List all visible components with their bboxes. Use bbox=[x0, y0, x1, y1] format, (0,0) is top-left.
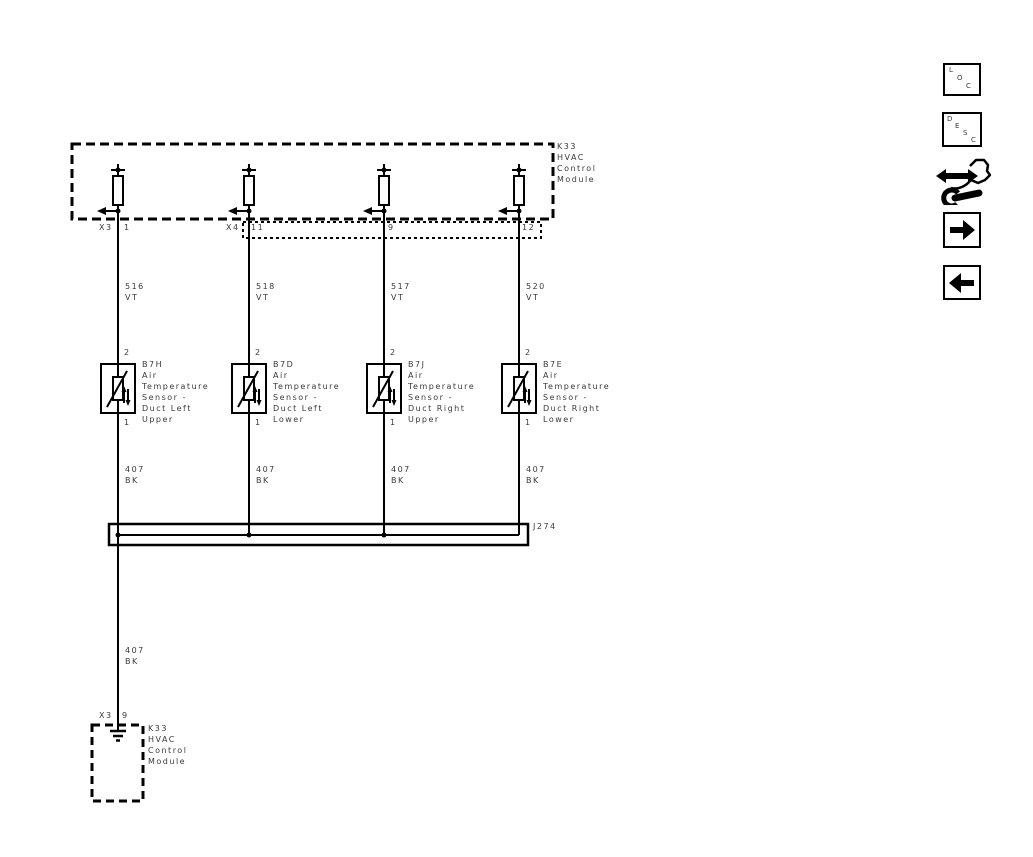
connector-label-x3: X3 bbox=[99, 222, 113, 233]
module-label-line: K33 bbox=[557, 141, 596, 152]
wiring-diagram-page: K33 HVAC Control Module X3 1 X4 11 9 12 … bbox=[0, 0, 1033, 857]
wire-color: BK bbox=[526, 475, 546, 486]
top-module-label: K33 HVAC Control Module bbox=[557, 141, 596, 185]
wire-color: VT bbox=[526, 292, 546, 303]
splice-label: J274 bbox=[533, 521, 557, 532]
module-label-line: Control bbox=[148, 745, 187, 756]
pin-label: 1 bbox=[124, 222, 131, 233]
module-label-line: HVAC bbox=[557, 152, 596, 163]
wire-id: 407 bbox=[125, 645, 145, 656]
wire-label: 520 VT bbox=[526, 281, 546, 303]
sensor-pin-top: 2 bbox=[255, 347, 262, 358]
wire-label: 407 BK bbox=[125, 464, 145, 486]
pin-terminal-symbol bbox=[379, 176, 389, 205]
sensor-id: B7H bbox=[142, 359, 209, 370]
signal-arrow-icon bbox=[363, 207, 372, 215]
desc-button[interactable]: D E S C bbox=[942, 112, 982, 147]
wire-label: 516 VT bbox=[125, 281, 145, 303]
wire-label: 407 BK bbox=[391, 464, 411, 486]
sensor-pin-top: 2 bbox=[390, 347, 397, 358]
wire-id: 517 bbox=[391, 281, 411, 292]
pin-label: 12 bbox=[522, 222, 535, 233]
module-label-line: K33 bbox=[148, 723, 187, 734]
sensor-label: B7H Air Temperature Sensor - Duct Left U… bbox=[142, 359, 209, 425]
module-label-line: HVAC bbox=[148, 734, 187, 745]
pin-label: 11 bbox=[251, 222, 264, 233]
sensor-pin-bottom: 1 bbox=[525, 417, 532, 428]
wire-label: 517 VT bbox=[391, 281, 411, 303]
wire-label: 518 VT bbox=[256, 281, 276, 303]
wire-id: 407 bbox=[391, 464, 411, 475]
pin-terminal-symbol bbox=[244, 176, 254, 205]
module-label-line: Module bbox=[557, 174, 596, 185]
signal-arrow-icon bbox=[97, 207, 106, 215]
wire-color: BK bbox=[256, 475, 276, 486]
loc-button[interactable]: L O C bbox=[943, 63, 981, 96]
wire-label: 407 BK bbox=[526, 464, 546, 486]
wrench-handle bbox=[955, 193, 979, 198]
top-module-box bbox=[72, 144, 553, 219]
wire-color: VT bbox=[391, 292, 411, 303]
wire-color: BK bbox=[391, 475, 411, 486]
sensor-label: B7J Air Temperature Sensor - Duct Right … bbox=[408, 359, 475, 425]
sensor-id: B7J bbox=[408, 359, 475, 370]
wire-label: 407 BK bbox=[125, 645, 145, 667]
arrow-left-icon bbox=[945, 267, 979, 298]
sensor-pin-bottom: 1 bbox=[255, 417, 262, 428]
wire-id: 407 bbox=[256, 464, 276, 475]
sensor-id: B7D bbox=[273, 359, 340, 370]
sensor-pin-bottom: 1 bbox=[124, 417, 131, 428]
service-info-hand-wrench-icon[interactable] bbox=[933, 157, 991, 205]
wire-color: VT bbox=[256, 292, 276, 303]
module-label-line: Module bbox=[148, 756, 187, 767]
signal-arrow-icon bbox=[228, 207, 237, 215]
bottom-module-label: K33 HVAC Control Module bbox=[148, 723, 187, 767]
connector-label-x4: X4 bbox=[226, 222, 240, 233]
arrow-right-icon bbox=[945, 214, 979, 246]
wire-id: 518 bbox=[256, 281, 276, 292]
pin-terminal-symbol bbox=[514, 176, 524, 205]
pin-terminal-symbol bbox=[113, 176, 123, 205]
wire-color: BK bbox=[125, 475, 145, 486]
wire-id: 407 bbox=[125, 464, 145, 475]
wire-label: 407 BK bbox=[256, 464, 276, 486]
signal-arrow-icon bbox=[498, 207, 507, 215]
module-label-line: Control bbox=[557, 163, 596, 174]
wire-color: VT bbox=[125, 292, 145, 303]
sensor-label: B7D Air Temperature Sensor - Duct Left L… bbox=[273, 359, 340, 425]
pin-label: 9 bbox=[122, 710, 129, 721]
next-page-button[interactable] bbox=[943, 212, 981, 248]
wire-id: 516 bbox=[125, 281, 145, 292]
pin-label: 9 bbox=[388, 222, 395, 233]
wire-id: 407 bbox=[526, 464, 546, 475]
sensor-label: B7E Air Temperature Sensor - Duct Right … bbox=[543, 359, 610, 425]
sensor-pin-top: 2 bbox=[525, 347, 532, 358]
sensor-pin-bottom: 1 bbox=[390, 417, 397, 428]
sensor-pin-top: 2 bbox=[124, 347, 131, 358]
wire-color: BK bbox=[125, 656, 145, 667]
prev-page-button[interactable] bbox=[943, 265, 981, 300]
connector-label-x3: X3 bbox=[99, 710, 113, 721]
sensor-id: B7E bbox=[543, 359, 610, 370]
wire-id: 520 bbox=[526, 281, 546, 292]
splice-j274-symbol bbox=[109, 524, 528, 545]
